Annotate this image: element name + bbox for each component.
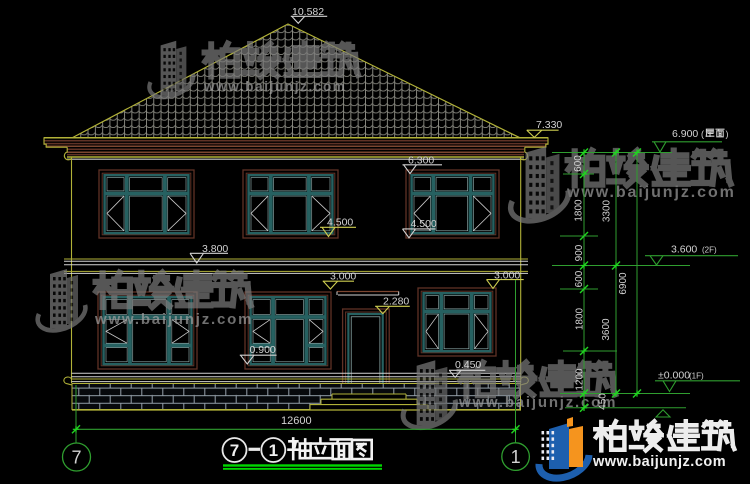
svg-text:600: 600 — [574, 270, 585, 287]
svg-text:±0.000: ±0.000 — [658, 370, 690, 382]
svg-text:3.600: 3.600 — [671, 244, 697, 256]
svg-text:www.baijunjz.com: www.baijunjz.com — [592, 454, 726, 470]
svg-text:3600: 3600 — [601, 318, 612, 341]
svg-text:7.330: 7.330 — [536, 119, 562, 131]
svg-text:4.500: 4.500 — [411, 218, 437, 230]
svg-text:www.baijunjz.com: www.baijunjz.com — [203, 79, 346, 94]
svg-text:1: 1 — [269, 441, 278, 460]
svg-text:1: 1 — [511, 447, 521, 467]
svg-text:12600: 12600 — [281, 415, 312, 427]
svg-text:(2F): (2F) — [702, 246, 717, 255]
svg-text:(: ( — [701, 129, 704, 139]
svg-text:2.280: 2.280 — [383, 295, 409, 307]
svg-text:1800: 1800 — [574, 199, 585, 222]
svg-text:600: 600 — [573, 155, 584, 172]
svg-text:0.450: 0.450 — [455, 359, 481, 371]
svg-text:7: 7 — [71, 448, 81, 468]
svg-text:0.900: 0.900 — [250, 344, 276, 356]
svg-text:7: 7 — [230, 441, 239, 460]
svg-text:1800: 1800 — [575, 307, 586, 330]
svg-text:450: 450 — [598, 393, 609, 410]
svg-text:): ) — [726, 129, 729, 139]
svg-text:(1F): (1F) — [689, 372, 704, 381]
svg-text:www.baijunjz.com: www.baijunjz.com — [566, 184, 736, 201]
svg-text:6900: 6900 — [618, 272, 629, 295]
svg-text:6.900: 6.900 — [672, 128, 698, 140]
svg-text:4.500: 4.500 — [327, 217, 353, 229]
svg-text:www.baijunjz.com: www.baijunjz.com — [458, 394, 617, 411]
svg-text:3300: 3300 — [602, 199, 613, 222]
svg-text:www.baijunjz.com: www.baijunjz.com — [94, 311, 253, 328]
svg-text:900: 900 — [574, 244, 585, 261]
svg-text:1200: 1200 — [575, 368, 586, 391]
